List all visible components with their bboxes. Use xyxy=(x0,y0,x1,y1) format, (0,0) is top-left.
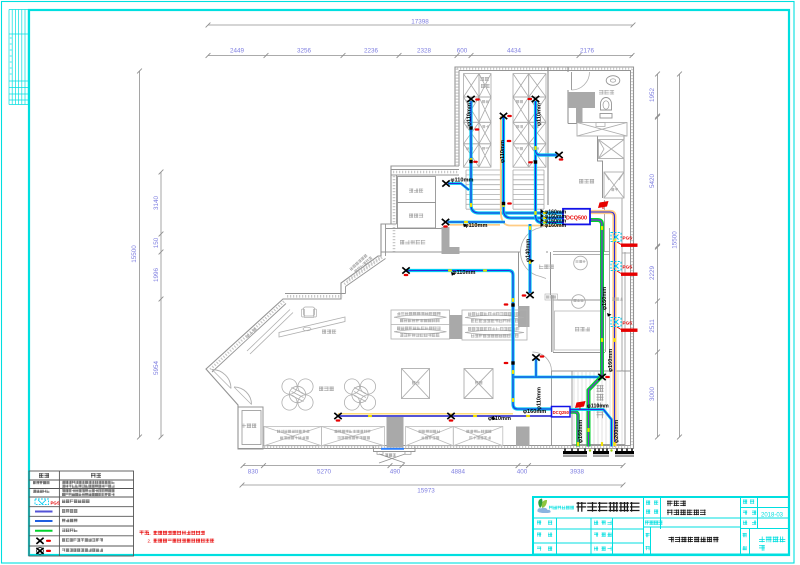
svg-text:600: 600 xyxy=(457,48,468,55)
svg-text:φ160mm: φ160mm xyxy=(578,420,584,443)
svg-text:5420: 5420 xyxy=(649,174,656,189)
svg-text:1996: 1996 xyxy=(153,268,160,283)
svg-text:5954: 5954 xyxy=(153,361,160,376)
svg-text:φ160mm: φ160mm xyxy=(523,409,546,415)
svg-text:DCQ500: DCQ500 xyxy=(566,215,587,221)
svg-text:φ110mm: φ110mm xyxy=(453,270,476,276)
svg-text:3000: 3000 xyxy=(649,387,656,402)
svg-text:3140: 3140 xyxy=(153,196,160,211)
svg-text:15500: 15500 xyxy=(131,245,138,263)
svg-text:2018-03: 2018-03 xyxy=(761,513,784,519)
svg-text:15500: 15500 xyxy=(672,231,679,249)
svg-text:φ110mm: φ110mm xyxy=(537,387,543,410)
svg-text:4434: 4434 xyxy=(507,48,522,55)
svg-text:φ160mm: φ160mm xyxy=(608,349,614,372)
svg-text:2176: 2176 xyxy=(580,48,595,55)
svg-text:PGS: PGS xyxy=(623,321,633,326)
svg-text:φ140mm: φ140mm xyxy=(526,239,532,262)
svg-text:DCQ250: DCQ250 xyxy=(553,410,570,415)
svg-text:400: 400 xyxy=(517,469,528,476)
svg-text:15973: 15973 xyxy=(417,488,435,495)
svg-text:PGS: PGS xyxy=(51,501,60,506)
svg-text:4884: 4884 xyxy=(451,469,466,476)
svg-text:490: 490 xyxy=(390,469,401,476)
svg-text:φ160mm: φ160mm xyxy=(602,287,608,310)
svg-text:2229: 2229 xyxy=(649,266,656,281)
svg-text:φ110mm: φ110mm xyxy=(537,103,543,126)
svg-text:3256: 3256 xyxy=(297,48,312,55)
svg-text:2449: 2449 xyxy=(230,48,245,55)
svg-text:φ110mm: φ110mm xyxy=(465,223,488,229)
svg-text:2511: 2511 xyxy=(649,319,656,333)
svg-text:2.: 2. xyxy=(148,539,152,544)
svg-text:5270: 5270 xyxy=(317,469,332,476)
svg-text:2236: 2236 xyxy=(364,48,379,55)
svg-text:PGS: PGS xyxy=(623,236,633,241)
svg-text:φ110mm: φ110mm xyxy=(467,103,473,126)
svg-text:3938: 3938 xyxy=(570,469,585,476)
svg-text:1.: 1. xyxy=(148,531,152,536)
svg-text:830: 830 xyxy=(248,469,259,476)
svg-text:φ110mm: φ110mm xyxy=(587,404,609,410)
svg-text:φ110mm: φ110mm xyxy=(488,416,511,422)
svg-text:17398: 17398 xyxy=(411,19,429,26)
svg-text:φ200mm: φ200mm xyxy=(614,420,620,443)
svg-text:φ110mm: φ110mm xyxy=(451,178,474,184)
svg-text:150: 150 xyxy=(153,237,160,248)
svg-text:PGS: PGS xyxy=(623,265,633,270)
svg-text:φ160mm: φ160mm xyxy=(545,223,567,229)
svg-text:φ110mm: φ110mm xyxy=(500,140,506,163)
svg-text:2328: 2328 xyxy=(417,48,432,55)
svg-text:1952: 1952 xyxy=(649,88,656,103)
